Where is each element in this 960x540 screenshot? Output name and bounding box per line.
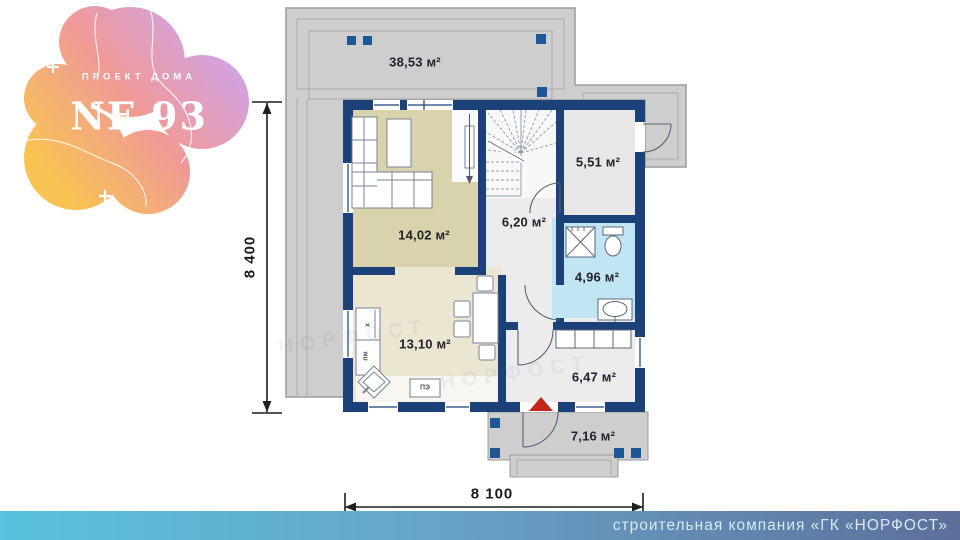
area-label-kitchen: 13,10 м²	[399, 337, 451, 352]
radiator	[452, 110, 478, 184]
label-stove: ПЭ	[420, 385, 430, 392]
company-name: строительная компания «ГК «НОРФОСТ»	[613, 517, 948, 535]
area-label-living: 14,02 м²	[398, 228, 450, 243]
floor-plan-page: НОРФОСТ НОРФОСТ ПРОЕКТ ДОМА NF 93 38,53 …	[0, 0, 960, 540]
area-label-bathroom: 4,96 м²	[575, 270, 619, 285]
area-label-entry-hall: 6,47 м²	[572, 370, 616, 385]
area-label-terrace: 38,53 м²	[389, 55, 441, 70]
area-label-room-551: 5,51 м²	[576, 155, 620, 170]
footer-bar: строительная компания «ГК «НОРФОСТ»	[0, 511, 960, 540]
dimension-width-label: 8 100	[471, 486, 514, 503]
entry-porch	[488, 412, 648, 477]
logo-kicker: ПРОЕКТ ДОМА	[82, 72, 196, 83]
label-fridge: х	[365, 323, 372, 327]
cabinet	[387, 119, 411, 167]
area-label-porch: 7,16 м²	[571, 429, 615, 444]
dimension-height-label: 8 400	[242, 236, 259, 279]
shower	[566, 227, 595, 257]
label-dishwasher: пм	[363, 351, 370, 360]
logo-title: NF 93	[70, 94, 208, 139]
kitchen-counter	[356, 308, 380, 375]
staircase	[486, 110, 556, 198]
wardrobe	[556, 330, 631, 348]
bathroom-sink	[598, 299, 632, 322]
toilet	[603, 227, 623, 256]
area-label-stair-hall: 6,20 м²	[502, 215, 546, 230]
